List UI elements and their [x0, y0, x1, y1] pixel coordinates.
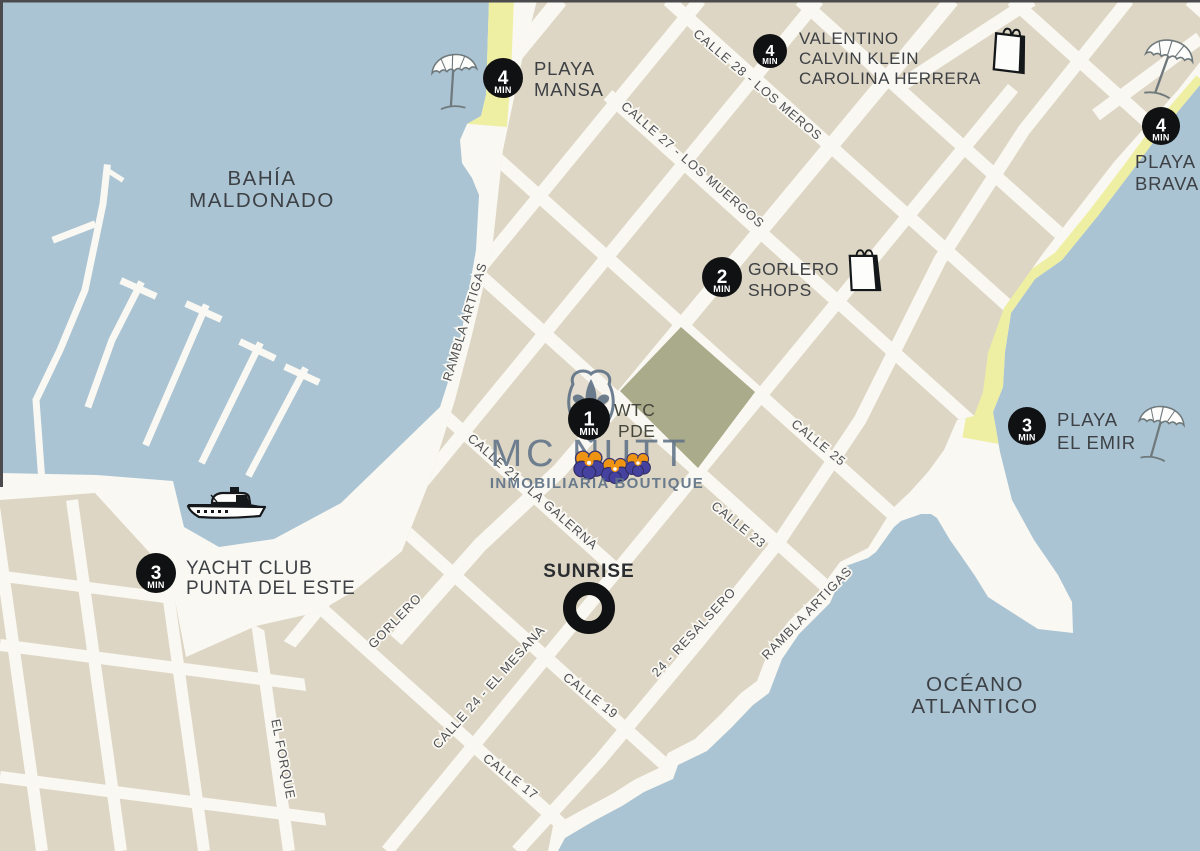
svg-text:PLAYA: PLAYA: [1135, 151, 1196, 172]
svg-text:BAHÍA: BAHÍA: [227, 167, 296, 190]
svg-text:PDE: PDE: [618, 421, 655, 441]
svg-text:GORLERO: GORLERO: [748, 259, 839, 279]
svg-text:PLAYA: PLAYA: [534, 58, 595, 79]
svg-text:YACHT CLUB: YACHT CLUB: [186, 558, 313, 579]
svg-text:MIN: MIN: [1018, 432, 1035, 442]
svg-text:OCÉANO: OCÉANO: [926, 673, 1024, 696]
svg-text:INMOBILIARIA BOUTIQUE: INMOBILIARIA BOUTIQUE: [490, 475, 704, 492]
svg-text:ATLANTICO: ATLANTICO: [911, 695, 1038, 718]
svg-text:MIN: MIN: [494, 85, 511, 95]
svg-text:PLAYA: PLAYA: [1057, 409, 1118, 430]
svg-text:SUNRISE: SUNRISE: [543, 561, 634, 582]
svg-text:MIN: MIN: [579, 427, 598, 438]
svg-text:MIN: MIN: [713, 284, 730, 294]
svg-text:MIN: MIN: [762, 57, 778, 66]
svg-text:MIN: MIN: [147, 580, 164, 590]
svg-text:CAROLINA HERRERA: CAROLINA HERRERA: [799, 69, 981, 88]
svg-text:MIN: MIN: [1152, 132, 1169, 142]
svg-text:BRAVA: BRAVA: [1135, 173, 1199, 194]
svg-text:PUNTA DEL ESTE: PUNTA DEL ESTE: [186, 578, 356, 599]
svg-text:CALVIN KLEIN: CALVIN KLEIN: [799, 49, 919, 68]
svg-text:MANSA: MANSA: [534, 79, 604, 100]
svg-text:VALENTINO: VALENTINO: [799, 29, 899, 48]
svg-text:MALDONADO: MALDONADO: [189, 189, 335, 212]
svg-text:SHOPS: SHOPS: [748, 280, 812, 300]
svg-text:EL EMIR: EL EMIR: [1057, 432, 1136, 453]
svg-text:WTC: WTC: [614, 400, 655, 420]
